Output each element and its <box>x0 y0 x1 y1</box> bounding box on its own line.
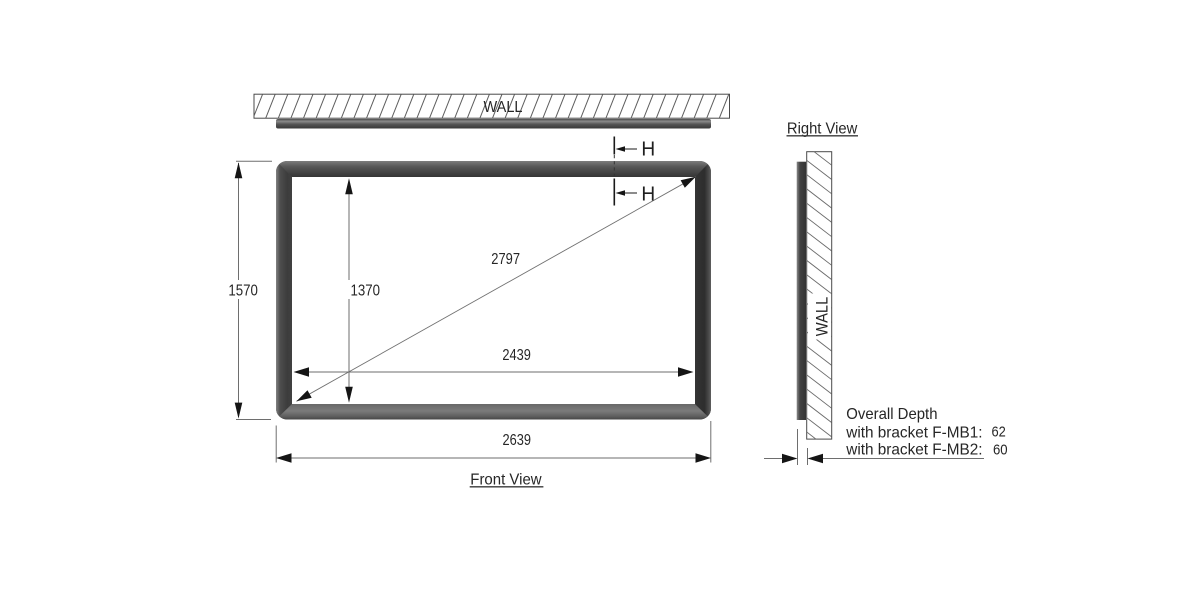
svg-text:2439: 2439 <box>502 347 531 364</box>
svg-text:1570: 1570 <box>228 283 258 300</box>
svg-text:60: 60 <box>993 441 1008 458</box>
svg-text:62: 62 <box>992 424 1006 441</box>
svg-text:Overall Depth: Overall Depth <box>846 406 937 423</box>
svg-text:Right View: Right View <box>787 120 858 137</box>
svg-text:with bracket F-MB2:: with bracket F-MB2: <box>845 442 982 459</box>
svg-text:with bracket F-MB1:: with bracket F-MB1: <box>845 425 982 442</box>
svg-text:1370: 1370 <box>351 283 381 300</box>
svg-text:Front View: Front View <box>470 471 542 488</box>
svg-text:H: H <box>641 183 655 205</box>
svg-text:2639: 2639 <box>503 432 532 449</box>
svg-text:H: H <box>641 139 655 161</box>
svg-text:2797: 2797 <box>491 251 520 268</box>
svg-text:WALL: WALL <box>814 297 832 337</box>
svg-text:WALL: WALL <box>484 99 523 116</box>
